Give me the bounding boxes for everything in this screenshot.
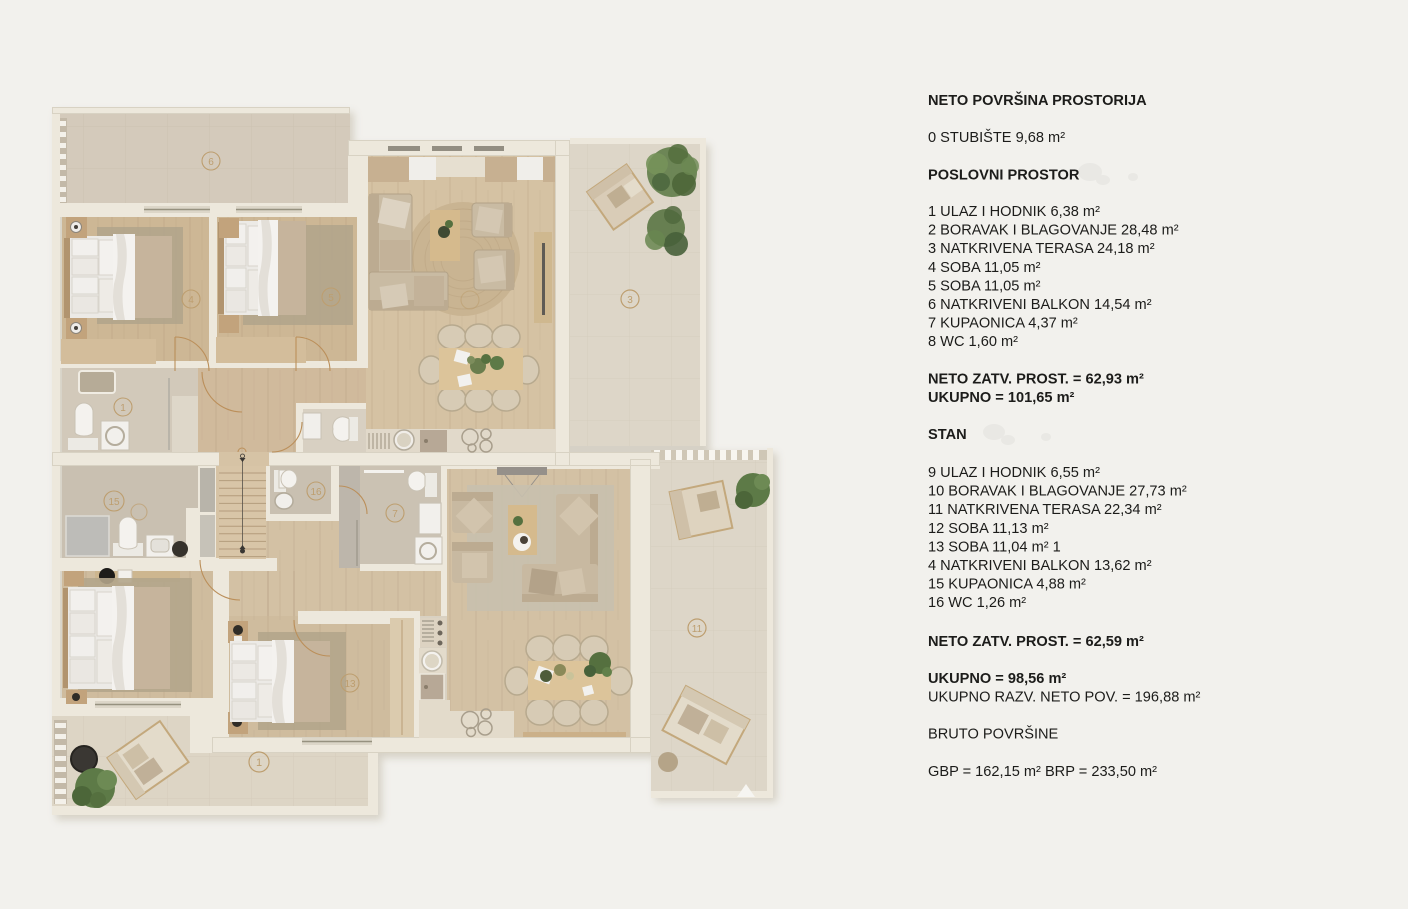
svg-text:15 KUPAONICA 4,88 m²: 15 KUPAONICA 4,88 m²: [928, 577, 1086, 593]
svg-text:11: 11: [692, 624, 703, 635]
svg-text:0 STUBIŠTE 9,68 m²: 0 STUBIŠTE 9,68 m²: [928, 129, 1065, 146]
svg-text:13: 13: [344, 679, 356, 690]
svg-text:8 WC 1,60 m²: 8 WC 1,60 m²: [928, 334, 1018, 350]
svg-text:11 NATKRIVENA TERASA 22,34 m²: 11 NATKRIVENA TERASA 22,34 m²: [928, 502, 1162, 518]
svg-text:6 NATKRIVENI BALKON 14,54 m²: 6 NATKRIVENI BALKON 14,54 m²: [928, 297, 1152, 313]
svg-text:POSLOVNI PROSTOR: POSLOVNI PROSTOR: [928, 168, 1080, 184]
svg-text:UKUPNO RAZV. NETO POV. = 196,8: UKUPNO RAZV. NETO POV. = 196,88 m²: [928, 689, 1201, 705]
svg-text:BRUTO POVRŠINE: BRUTO POVRŠINE: [928, 726, 1059, 743]
svg-text:16 WC 1,26 m²: 16 WC 1,26 m²: [928, 595, 1026, 611]
svg-text:6: 6: [208, 157, 214, 168]
svg-text:4: 4: [188, 295, 194, 306]
svg-text:15: 15: [108, 497, 120, 508]
svg-text:NETO POVRŠINA PROSTORIJA: NETO POVRŠINA PROSTORIJA: [928, 91, 1147, 109]
svg-text:9 ULAZ I HODNIK 6,55 m²: 9 ULAZ I HODNIK 6,55 m²: [928, 465, 1100, 481]
svg-text:2 BORAVAK I BLAGOVANJE 28,48 m: 2 BORAVAK I BLAGOVANJE 28,48 m²: [928, 223, 1179, 239]
svg-text:NETO ZATV. PROST. = 62,59 m²: NETO ZATV. PROST. = 62,59 m²: [928, 634, 1144, 650]
svg-text:7: 7: [392, 509, 398, 520]
svg-text:5: 5: [328, 293, 334, 304]
svg-text:16: 16: [310, 487, 322, 498]
svg-text:7 KUPAONICA 4,37 m²: 7 KUPAONICA 4,37 m²: [928, 316, 1078, 332]
svg-text:5 SOBA 11,05 m²: 5 SOBA 11,05 m²: [928, 278, 1041, 294]
svg-text:GBP = 162,15 m² BRP = 233,50 m: GBP = 162,15 m² BRP = 233,50 m²: [928, 764, 1157, 780]
svg-text:13 SOBA 11,04 m² 1: 13 SOBA 11,04 m² 1: [928, 539, 1061, 555]
svg-text:1 ULAZ I HODNIK 6,38 m²: 1 ULAZ I HODNIK 6,38 m²: [928, 204, 1100, 220]
svg-text:1: 1: [256, 757, 262, 769]
svg-text:NETO ZATV. PROST. = 62,93 m²: NETO ZATV. PROST. = 62,93 m²: [928, 371, 1144, 387]
svg-text:10 BORAVAK I BLAGOVANJE 27,73: 10 BORAVAK I BLAGOVANJE 27,73 m²: [928, 484, 1187, 500]
svg-text:UKUPNO = 101,65 m²: UKUPNO = 101,65 m²: [928, 390, 1075, 406]
svg-text:STAN: STAN: [928, 427, 967, 443]
svg-text:UKUPNO = 98,56 m²: UKUPNO = 98,56 m²: [928, 671, 1066, 687]
svg-text:3: 3: [627, 295, 633, 306]
svg-text:4 NATKRIVENI BALKON 13,62 m²: 4 NATKRIVENI BALKON 13,62 m²: [928, 558, 1152, 574]
svg-text:4 SOBA 11,05 m²: 4 SOBA 11,05 m²: [928, 260, 1041, 276]
svg-text:3 NATKRIVENA TERASA 24,18 m²: 3 NATKRIVENA TERASA 24,18 m²: [928, 241, 1155, 257]
svg-text:12 SOBA 11,13 m²: 12 SOBA 11,13 m²: [928, 521, 1049, 537]
svg-text:1: 1: [120, 403, 126, 414]
